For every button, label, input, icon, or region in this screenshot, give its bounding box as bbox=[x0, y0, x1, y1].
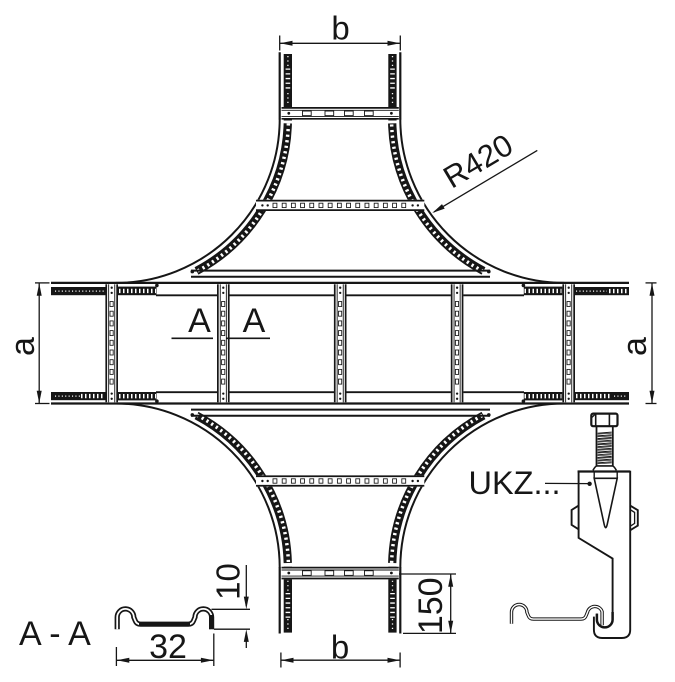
svg-text:b: b bbox=[331, 10, 349, 47]
svg-text:A: A bbox=[188, 302, 211, 340]
svg-text:a: a bbox=[616, 337, 654, 356]
svg-text:A: A bbox=[243, 302, 266, 340]
svg-text:150: 150 bbox=[412, 577, 450, 634]
svg-text:32: 32 bbox=[149, 628, 187, 666]
svg-text:b: b bbox=[331, 629, 349, 666]
svg-text:10: 10 bbox=[210, 563, 247, 600]
svg-text:A - A: A - A bbox=[19, 615, 91, 653]
svg-text:a: a bbox=[4, 337, 42, 356]
